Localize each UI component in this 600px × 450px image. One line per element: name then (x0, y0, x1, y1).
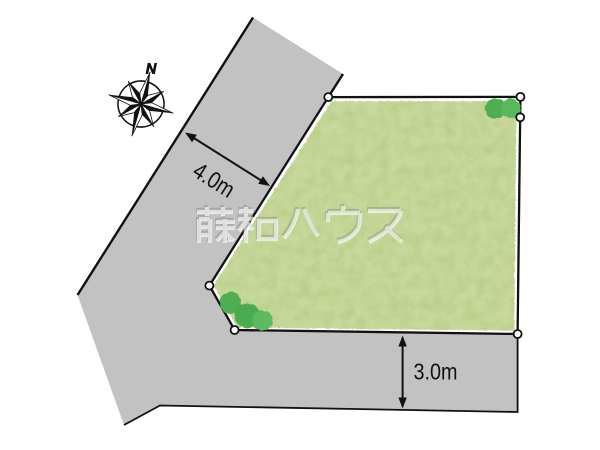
svg-text:3.0m: 3.0m (414, 359, 458, 385)
